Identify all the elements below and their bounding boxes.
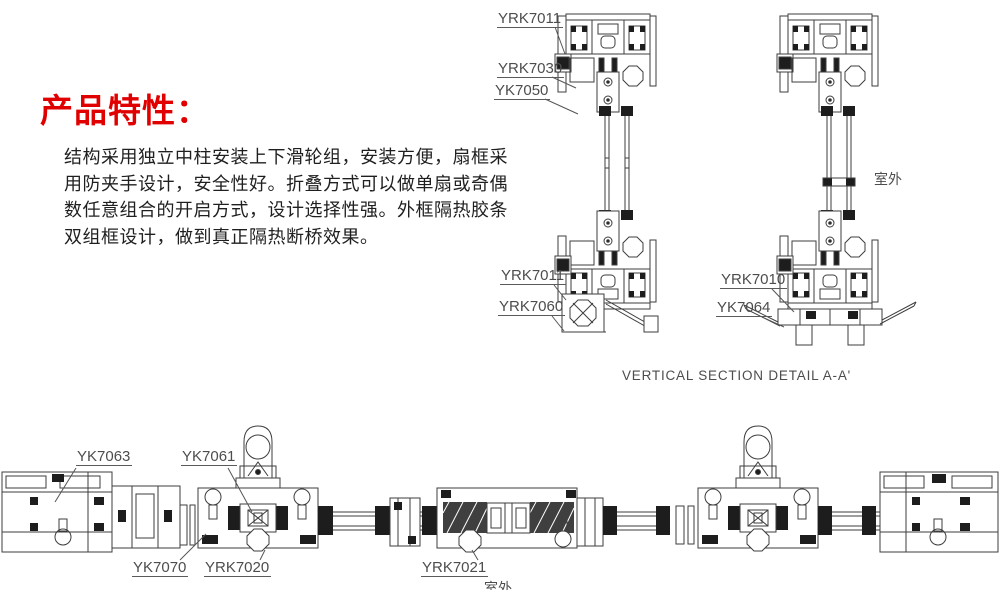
label-head-track: YRK7011 bbox=[497, 11, 563, 28]
label-carrier-block: YRK7030 bbox=[497, 61, 564, 78]
label-bottom-track: YRK7011 bbox=[500, 268, 566, 285]
label-frame-jamb: YK7063 bbox=[76, 449, 132, 466]
vertical-section-left-drawing bbox=[555, 14, 658, 332]
horizontal-section-drawing bbox=[2, 426, 998, 552]
label-sill-adapter: YRK7060 bbox=[498, 299, 565, 316]
label-hinge-pivot: YK7061 bbox=[181, 449, 237, 466]
label-meeting-stile: YRK7021 bbox=[421, 560, 488, 577]
label-sash-profile: YK7070 bbox=[132, 560, 188, 577]
label-fold-joint: YRK7020 bbox=[204, 560, 271, 577]
feature-line: 双组框设计，做到真正隔热断桥效果。 bbox=[64, 224, 534, 251]
feature-line: 结构采用独立中柱安装上下滑轮组，安装方便，扇框采 bbox=[64, 144, 534, 171]
vertical-section-caption: VERTICAL SECTION DETAIL A-A' bbox=[622, 368, 851, 383]
label-track-cover: YK7050 bbox=[494, 83, 550, 100]
label-right-bottom-track: YRK7010 bbox=[720, 272, 787, 289]
feature-line: 用防夹手设计，安全性好。折叠方式可以做单扇或奇偶 bbox=[64, 171, 534, 198]
outdoor-side-label: 室外 bbox=[874, 172, 902, 187]
label-right-sill: YK7064 bbox=[716, 300, 772, 317]
page-title: 产品特性： bbox=[40, 84, 210, 132]
catalog-page: 产品特性： 结构采用独立中柱安装上下滑轮组，安装方便，扇框采 用防夹手设计，安全… bbox=[0, 0, 1000, 590]
feature-line: 数任意组合的开启方式，设计选择性强。外框隔热胶条 bbox=[64, 197, 534, 224]
feature-description: 结构采用独立中柱安装上下滑轮组，安装方便，扇框采 用防夹手设计，安全性好。折叠方… bbox=[64, 144, 534, 250]
outdoor-bottom-label: 室外 bbox=[484, 581, 512, 590]
